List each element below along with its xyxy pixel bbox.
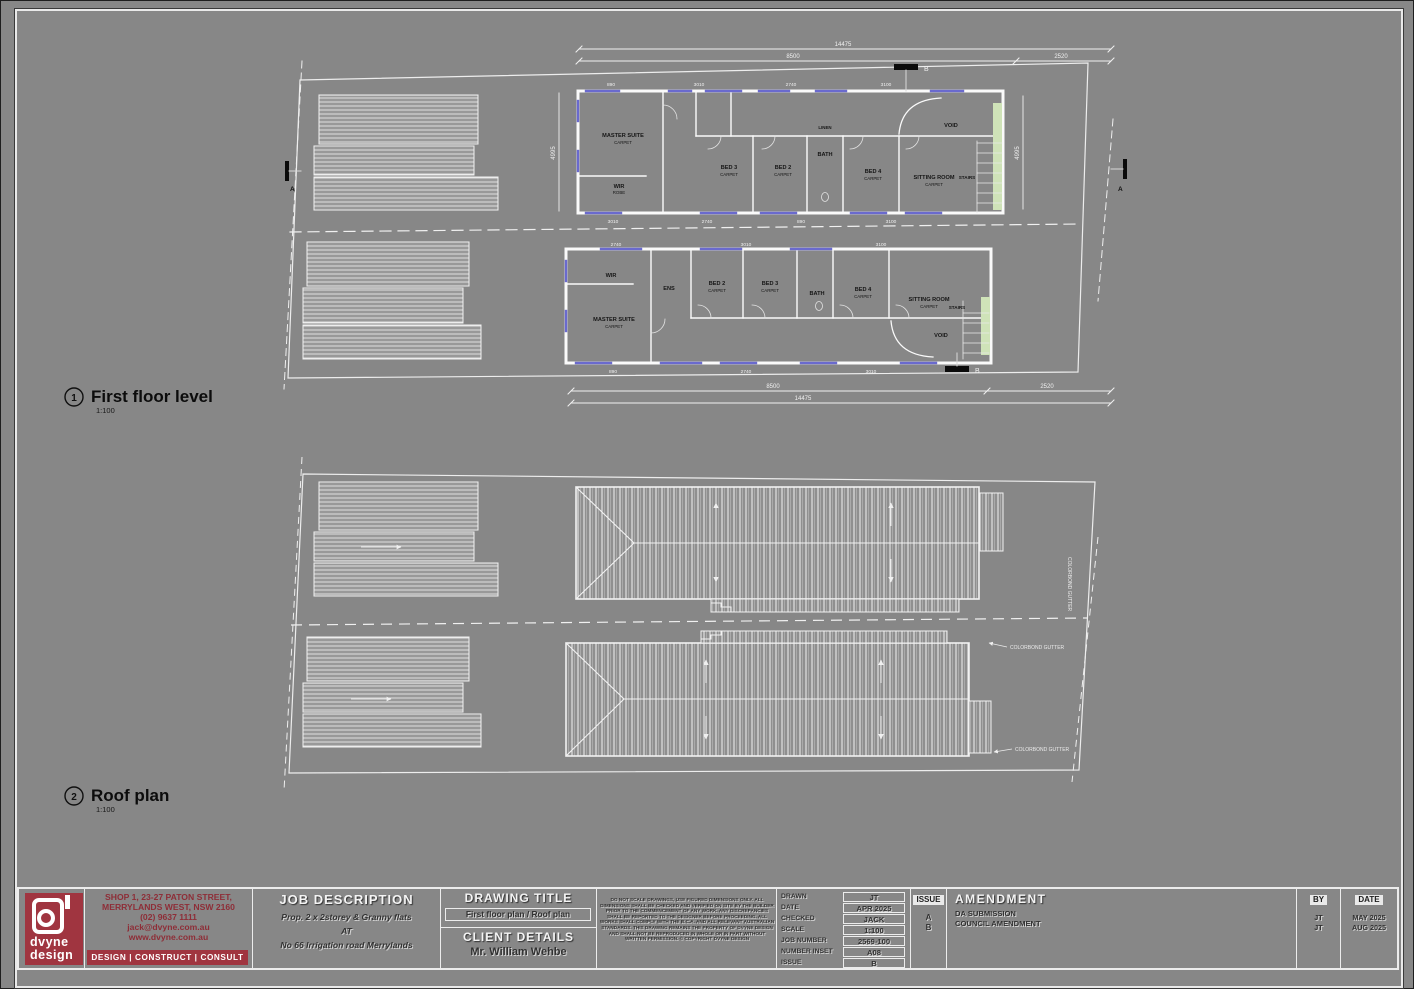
date-row: AUG 2025 bbox=[1341, 923, 1397, 932]
drawing-title-header: DRAWING TITLE bbox=[441, 891, 596, 905]
brand-tagline: DESIGN | CONSTRUCT | CONSULT bbox=[87, 950, 248, 965]
svg-text:3100: 3100 bbox=[886, 219, 897, 225]
meta-value: 1:100 bbox=[843, 925, 905, 935]
meta-label: DRAWN bbox=[781, 893, 807, 900]
meta-label: SCALE bbox=[781, 926, 804, 933]
meta-table: DRAWNJT DATEAPR 2025 CHECKEDJACK SCALE1:… bbox=[776, 889, 911, 968]
job-description-cell: JOB DESCRIPTION Prop. 2 x 2storey & Gran… bbox=[253, 889, 441, 968]
plan-title: Roof plan bbox=[91, 786, 169, 805]
contact-cell: SHOP 1, 23-27 PATON STREET, MERRYLANDS W… bbox=[85, 889, 253, 968]
plan-number-bubble: 1 bbox=[71, 393, 77, 404]
job-line-1: Prop. 2 x 2storey & Granny flats bbox=[253, 912, 440, 922]
room-label: BED 4 bbox=[855, 287, 872, 293]
roof-annotations: COLORBOND GUTTER COLORBOND GUTTER COLORB… bbox=[989, 557, 1072, 753]
drawing-title-cell: DRAWING TITLE First floor plan / Roof pl… bbox=[441, 889, 597, 968]
upper-unit-walls bbox=[578, 91, 1003, 213]
room-sub: CARPET bbox=[708, 288, 726, 293]
dvyne-logo: dvyne design bbox=[25, 893, 83, 965]
room-label: SITTING ROOM bbox=[908, 297, 949, 303]
dim-label: 4995 bbox=[1015, 146, 1021, 160]
gutter-annotation-vertical: COLORBOND GUTTER bbox=[1066, 557, 1072, 612]
room-sub: CARPET bbox=[720, 172, 738, 177]
amendment-header: AMENDMENT bbox=[947, 892, 1296, 906]
section-marker-b-bottom: B bbox=[975, 368, 980, 375]
issue-header: ISSUE bbox=[913, 895, 943, 905]
by-header: BY bbox=[1310, 895, 1327, 905]
meta-value: JT bbox=[843, 892, 905, 902]
roof-below-lower bbox=[303, 637, 481, 747]
lot-centerline-dashed bbox=[290, 224, 1081, 232]
room-label: BED 2 bbox=[709, 281, 725, 287]
gutter-annotation: COLORBOND GUTTER bbox=[1010, 645, 1065, 651]
first-floor-label: 1 First floor level 1:100 bbox=[65, 387, 213, 415]
amendment-row: DA SUBMISSION bbox=[947, 909, 1296, 918]
contact-address-1: SHOP 1, 23-27 PATON STREET, bbox=[85, 892, 252, 902]
room-sub: CARPET bbox=[925, 182, 943, 187]
client-details-header: CLIENT DETAILS bbox=[441, 930, 596, 944]
roof-plan-drawing: COLORBOND GUTTER COLORBOND GUTTER COLORB… bbox=[65, 457, 1098, 814]
job-line-2: AT bbox=[253, 926, 440, 936]
svg-text:2740: 2740 bbox=[786, 82, 797, 88]
room-label: ENS bbox=[663, 286, 675, 292]
lot-boundary-dashed-right bbox=[1072, 537, 1098, 782]
svg-text:3010: 3010 bbox=[694, 82, 705, 88]
room-label: STAIRS bbox=[949, 305, 966, 310]
roof-plan-label: 2 Roof plan 1:100 bbox=[65, 786, 169, 814]
upper-unit-doors bbox=[663, 105, 919, 149]
room-sub: CARPET bbox=[854, 294, 872, 299]
section-marker-a-left: A bbox=[290, 186, 295, 193]
room-sub: CARPET bbox=[605, 324, 623, 329]
svg-text:890: 890 bbox=[609, 369, 617, 375]
room-label: BED 2 bbox=[775, 165, 791, 171]
client-name: Mr. William Wehbe bbox=[441, 946, 596, 958]
meta-value: A08 bbox=[843, 947, 905, 957]
wc-lower bbox=[816, 302, 823, 311]
room-label: VOID bbox=[934, 333, 948, 339]
date-row: MAY 2025 bbox=[1341, 913, 1397, 922]
dim-label: 2520 bbox=[1040, 384, 1054, 390]
wc-upper bbox=[822, 193, 829, 202]
svg-text:890: 890 bbox=[797, 219, 805, 225]
svg-text:2740: 2740 bbox=[611, 242, 622, 248]
upper-unit-room-labels: MASTER SUITE CARPET WIR ROBE BED 3 CARPE… bbox=[602, 123, 975, 195]
room-label: STAIRS bbox=[959, 175, 976, 180]
by-column: BY JT JT bbox=[1297, 889, 1341, 968]
lot-boundary-dashed-left bbox=[284, 457, 302, 791]
main-roof-lower bbox=[566, 631, 991, 756]
date-header: DATE bbox=[1355, 895, 1382, 905]
dim-label: 2520 bbox=[1054, 54, 1068, 60]
room-sub: CARPET bbox=[920, 304, 938, 309]
room-label: BED 4 bbox=[865, 169, 882, 175]
meta-label: CHECKED bbox=[781, 915, 815, 922]
room-label: MASTER SUITE bbox=[602, 133, 644, 139]
meta-label: NUMBER INSET bbox=[781, 948, 833, 955]
plans-canvas: MASTER SUITE CARPET WIR ROBE BED 3 CARPE… bbox=[1, 1, 1414, 881]
issue-column: ISSUE A B bbox=[911, 889, 947, 968]
plan-scale: 1:100 bbox=[96, 406, 115, 415]
svg-text:3100: 3100 bbox=[881, 82, 892, 88]
dim-label: 4995 bbox=[551, 146, 557, 160]
roof-below-upper bbox=[314, 95, 498, 210]
contact-website: www.dvyne.com.au bbox=[85, 932, 252, 942]
room-sub: CARPET bbox=[774, 172, 792, 177]
lower-unit-room-labels: WIR ENS MASTER SUITE CARPET BED 2 CARPET… bbox=[593, 273, 965, 339]
room-sub: ROBE bbox=[613, 190, 626, 195]
stair-highlight-upper bbox=[993, 103, 1002, 210]
lot-centerline-dashed bbox=[291, 618, 1087, 625]
disclaimer-text: DO NOT SCALE DRAWINGS, USE FIGURED DIMEN… bbox=[599, 897, 775, 942]
svg-text:3010: 3010 bbox=[741, 242, 752, 248]
first-floor-plan-drawing: MASTER SUITE CARPET WIR ROBE BED 3 CARPE… bbox=[65, 42, 1127, 415]
lot-boundary-dashed-left bbox=[284, 61, 302, 389]
meta-label: ISSUE bbox=[781, 959, 801, 966]
meta-value: JACK bbox=[843, 914, 905, 924]
roof-below-lower bbox=[303, 242, 481, 359]
room-sub: CARPET bbox=[614, 140, 632, 145]
svg-text:2740: 2740 bbox=[741, 369, 752, 375]
section-marker-a-right: A bbox=[1118, 186, 1123, 193]
room-label: WIR bbox=[606, 273, 617, 279]
plan-title: First floor level bbox=[91, 387, 213, 406]
dim-label: 8500 bbox=[766, 384, 780, 390]
room-label: BED 3 bbox=[762, 281, 778, 287]
main-roof-upper bbox=[576, 487, 1003, 612]
lot-boundary-dashed-right bbox=[1098, 119, 1113, 301]
room-label: BATH bbox=[817, 152, 832, 158]
svg-text:3010: 3010 bbox=[608, 219, 619, 225]
upper-unit-windows bbox=[578, 91, 963, 213]
meta-value: B bbox=[843, 958, 905, 968]
svg-text:3010: 3010 bbox=[866, 369, 877, 375]
room-label: MASTER SUITE bbox=[593, 317, 635, 323]
meta-label: JOB NUMBER bbox=[781, 937, 827, 944]
dim-label: 14475 bbox=[835, 42, 852, 48]
dim-label: 8500 bbox=[786, 54, 800, 60]
drawing-title-value: First floor plan / Roof plan bbox=[446, 909, 590, 920]
svg-text:3100: 3100 bbox=[876, 242, 887, 248]
date-column: DATE MAY 2025 AUG 2025 bbox=[1341, 889, 1397, 968]
title-block: dvyne design SHOP 1, 23-27 PATON STREET,… bbox=[17, 887, 1399, 970]
roof-below-upper bbox=[314, 482, 498, 596]
contact-address-2: MERRYLANDS WEST, NSW 2160 bbox=[85, 902, 252, 912]
amendment-row: COUNCIL AMENDMENT bbox=[947, 919, 1296, 928]
dim-label: 14475 bbox=[795, 396, 812, 402]
issue-row: B bbox=[911, 923, 946, 932]
brand-name-line2: design bbox=[30, 949, 73, 962]
room-label: SITTING ROOM bbox=[913, 175, 954, 181]
room-label: BATH bbox=[809, 291, 824, 297]
meta-value: 2569-100 bbox=[843, 936, 905, 946]
svg-text:890: 890 bbox=[607, 82, 615, 88]
gutter-annotation: COLORBOND GUTTER bbox=[1015, 747, 1070, 753]
logo-cell: dvyne design bbox=[19, 889, 85, 968]
lower-unit-doors bbox=[651, 305, 909, 333]
contact-email: jack@dvyne.com.au bbox=[85, 922, 252, 932]
room-sub: CARPET bbox=[864, 176, 882, 181]
job-line-3: No 66 Irrigation road Merrylands bbox=[253, 940, 440, 950]
room-label: VOID bbox=[944, 123, 958, 129]
by-row: JT bbox=[1297, 913, 1340, 922]
job-description-header: JOB DESCRIPTION bbox=[253, 892, 440, 907]
contact-phone: (02) 9637 1111 bbox=[85, 912, 252, 922]
room-label: LINEN bbox=[818, 125, 831, 130]
lower-unit-windows bbox=[566, 249, 936, 363]
svg-text:2740: 2740 bbox=[702, 219, 713, 225]
stair-highlight-lower bbox=[981, 297, 990, 355]
meta-value: APR 2025 bbox=[843, 903, 905, 913]
by-row: JT bbox=[1297, 923, 1340, 932]
amendment-cell: AMENDMENT DA SUBMISSION COUNCIL AMENDMEN… bbox=[947, 889, 1297, 968]
meta-label: DATE bbox=[781, 904, 799, 911]
drawing-sheet: MASTER SUITE CARPET WIR ROBE BED 3 CARPE… bbox=[1, 1, 1413, 988]
room-label: BED 3 bbox=[721, 165, 737, 171]
issue-row: A bbox=[911, 913, 946, 922]
room-sub: CARPET bbox=[761, 288, 779, 293]
plan-number-bubble: 2 bbox=[71, 792, 77, 803]
section-marker-b-top: B bbox=[924, 66, 929, 73]
plan-scale: 1:100 bbox=[96, 805, 115, 814]
